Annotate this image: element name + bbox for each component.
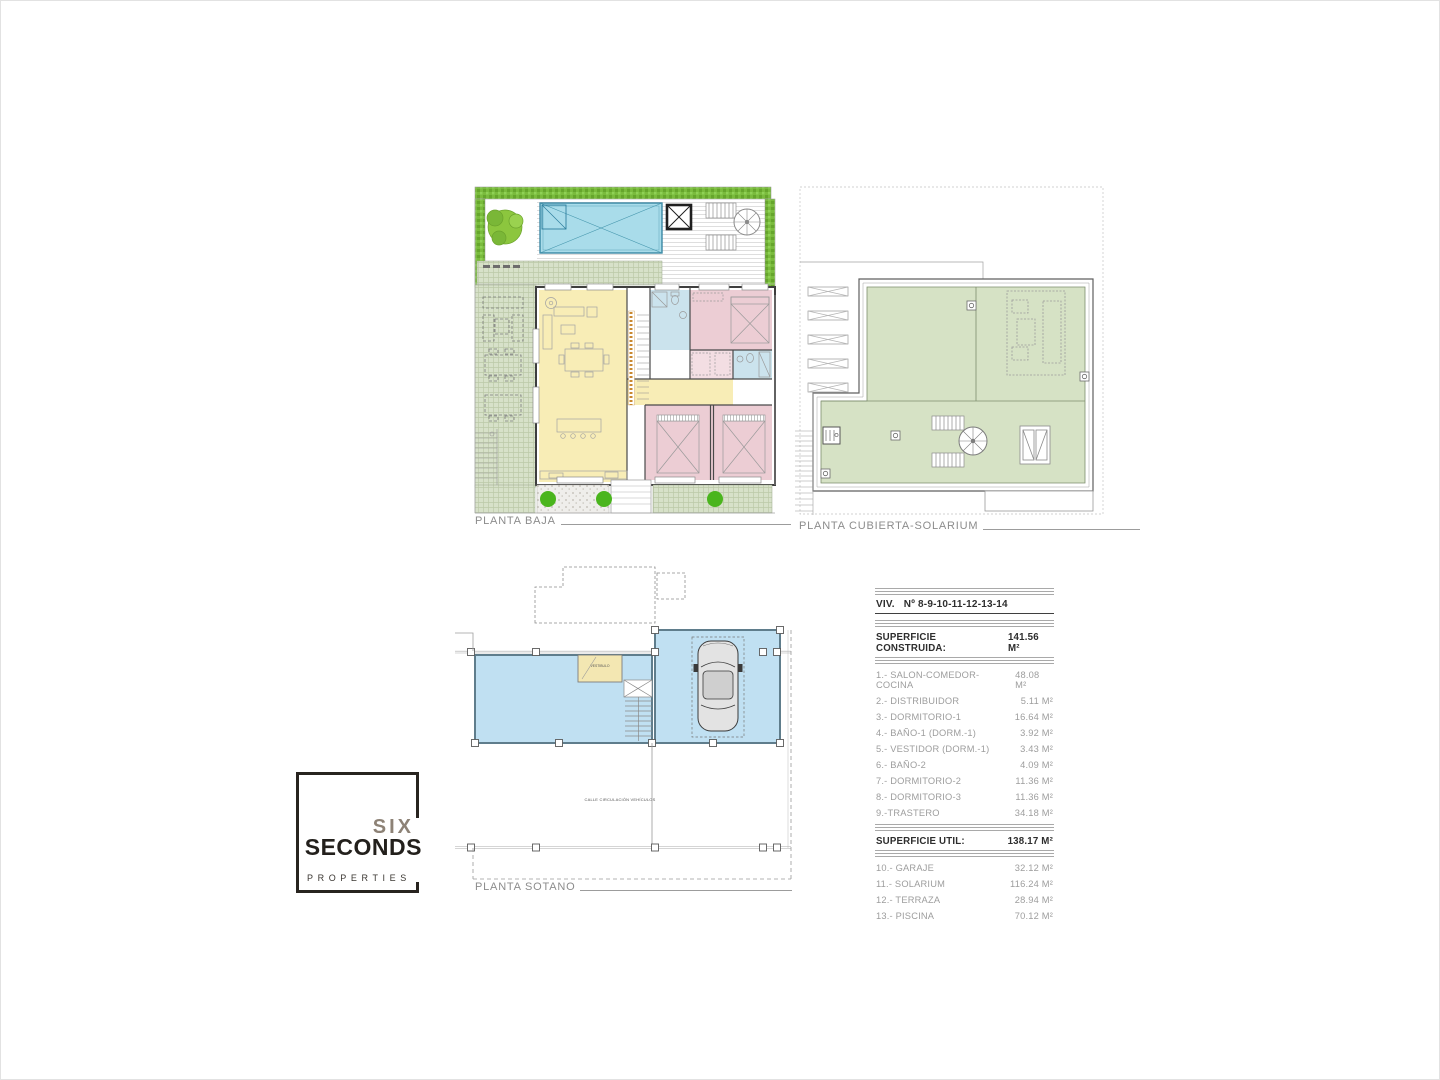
table-row: 13.- PISCINA 70.12 M² — [875, 908, 1054, 924]
table-row: 6.- BAÑO-2 4.09 M² — [875, 757, 1054, 773]
logo-frame — [416, 882, 419, 893]
room-label: 13.- PISCINA — [876, 911, 934, 921]
room-area: 116.24 M² — [1010, 879, 1053, 889]
plan-title: PLANTA SOTANO — [475, 881, 575, 893]
logo-word-properties: PROPERTIES — [307, 873, 411, 883]
room-label: 12.- TERRAZA — [876, 895, 940, 905]
room-label: 3.- DORMITORIO-1 — [876, 712, 961, 722]
exterior-staircase — [795, 393, 813, 515]
room-area: 11.36 M² — [1015, 792, 1053, 802]
table-title: VIV. Nº 8-9-10-11-12-13-14 — [875, 595, 1054, 613]
room-label: 1.- SALON-COMEDOR-COCINA — [876, 670, 1015, 690]
header-area: 138.17 M² — [1008, 836, 1053, 847]
plan-title: PLANTA BAJA — [475, 515, 556, 527]
superficie-construida-row: SUPERFICIE CONSTRUIDA: 141.56 M² — [875, 627, 1054, 657]
trastero-room — [475, 655, 652, 743]
ac-unit — [823, 427, 840, 444]
room-label: 6.- BAÑO-2 — [876, 760, 926, 770]
garden-tree — [487, 210, 523, 245]
table-row: 2.- DISTRIBUIDOR 5.11 M² — [875, 693, 1054, 709]
table-row: 10.- GARAJE 32.12 M² — [875, 860, 1054, 876]
room-label: 7.- DORMITORIO-2 — [876, 776, 961, 786]
side-terrace — [475, 285, 536, 487]
swimming-pool — [540, 203, 662, 253]
plan-title: PLANTA CUBIERTA-SOLARIUM — [799, 520, 978, 532]
room-area: 32.12 M² — [1015, 863, 1053, 873]
planta-baja-label: PLANTA BAJA — [475, 515, 791, 527]
spiral-staircase — [734, 209, 760, 235]
logo-frame — [296, 772, 419, 775]
house-ground-floor — [533, 284, 775, 485]
terrace-strips — [477, 261, 662, 285]
footprint-dashed-outline — [535, 567, 685, 623]
label-rule — [580, 890, 792, 891]
table-row: 1.- SALON-COMEDOR-COCINA 48.08 M² — [875, 667, 1054, 693]
planta-baja-drawing — [459, 183, 791, 523]
room-label: 5.- VESTIDOR (DORM.-1) — [876, 744, 989, 754]
logo-frame — [296, 772, 299, 893]
planta-sotano-label: PLANTA SOTANO — [475, 881, 792, 893]
car-top-view — [694, 641, 743, 731]
room-label: 9.-TRASTERO — [876, 808, 940, 818]
table-rule — [875, 850, 1054, 857]
room-area: 4.09 M² — [1020, 760, 1053, 770]
room-area: 11.36 M² — [1015, 776, 1053, 786]
room-label: 8.- DORMITORIO-3 — [876, 792, 961, 802]
superficie-util-row: SUPERFICIE UTIL: 138.17 M² — [875, 831, 1054, 850]
header-label: SUPERFICIE UTIL: — [876, 836, 965, 847]
double-sunbed — [1020, 426, 1050, 464]
table-rule — [875, 657, 1054, 664]
room-area: 70.12 M² — [1015, 911, 1053, 921]
room-area: 3.43 M² — [1020, 744, 1053, 754]
room-area: 16.64 M² — [1015, 712, 1053, 722]
front-garden-strip — [475, 480, 772, 513]
room-area: 5.11 M² — [1021, 696, 1053, 706]
table-row: 11.- SOLARIUM 116.24 M² — [875, 876, 1054, 892]
lower-boundary — [455, 844, 791, 851]
table-row: 4.- BAÑO-1 (DORM.-1) 3.92 M² — [875, 725, 1054, 741]
driveway: CALLE CIRCULACIÓN VEHÍCULOS — [585, 743, 656, 848]
room-label: 4.- BAÑO-1 (DORM.-1) — [876, 728, 976, 738]
entrance-path — [611, 480, 651, 513]
room-label: 2.- DISTRIBUIDOR — [876, 696, 959, 706]
label-rule — [561, 524, 791, 525]
logo-frame — [416, 772, 419, 818]
surface-area-table: VIV. Nº 8-9-10-11-12-13-14 SUPERFICIE CO… — [875, 588, 1054, 924]
logo-word-seconds: SECONDS — [305, 834, 422, 861]
six-seconds-logo: SIX SECONDS PROPERTIES — [296, 772, 419, 893]
dwelling-prefix: VIV. — [876, 599, 895, 610]
dwelling-numbers: Nº 8-9-10-11-12-13-14 — [904, 599, 1008, 610]
lower-landing — [985, 491, 1093, 511]
table-rule — [875, 588, 1054, 595]
header-area: 141.56 M² — [1008, 632, 1053, 654]
vestibule: VESTIBULO — [578, 655, 622, 682]
outdoor-shower — [667, 205, 691, 229]
table-rule — [875, 620, 1054, 627]
table-row: 3.- DORMITORIO-1 16.64 M² — [875, 709, 1054, 725]
garage — [655, 630, 780, 743]
page-border — [0, 0, 1440, 1080]
header-label: SUPERFICIE CONSTRUIDA: — [876, 632, 1008, 654]
spiral-staircase — [959, 427, 987, 455]
room-area: 3.92 M² — [1020, 728, 1053, 738]
table-row: 5.- VESTIDOR (DORM.-1) 3.43 M² — [875, 741, 1054, 757]
logo-frame — [296, 890, 419, 893]
label-rule — [983, 529, 1140, 530]
room-area: 28.94 M² — [1015, 895, 1053, 905]
room-area: 34.18 M² — [1015, 808, 1053, 818]
planta-cubierta-drawing — [795, 183, 1140, 518]
planta-cubierta-label: PLANTA CUBIERTA-SOLARIUM — [799, 520, 1140, 532]
distribuidor-corridor — [627, 379, 733, 405]
driveway-label: CALLE CIRCULACIÓN VEHÍCULOS — [585, 797, 656, 802]
bathroom-1 — [650, 290, 690, 350]
pergola-slats — [808, 287, 848, 392]
plan-sheet: { "plans": { "planta_baja": { "label": "… — [0, 0, 1440, 1080]
room-label: 11.- SOLARIUM — [876, 879, 945, 889]
vestibule-label: VESTIBULO — [590, 664, 609, 668]
table-row: 7.- DORMITORIO-2 11.36 M² — [875, 773, 1054, 789]
table-row: 12.- TERRAZA 28.94 M² — [875, 892, 1054, 908]
table-rule — [875, 824, 1054, 831]
planta-sotano-drawing: VESTIBULO CALLE CIRCULACIÓN VEHÍCULOS — [455, 545, 795, 895]
table-row: 8.- DORMITORIO-3 11.36 M² — [875, 789, 1054, 805]
room-label: 10.- GARAJE — [876, 863, 934, 873]
table-row: 9.-TRASTERO 34.18 M² — [875, 805, 1054, 821]
room-area: 48.08 M² — [1015, 670, 1053, 690]
